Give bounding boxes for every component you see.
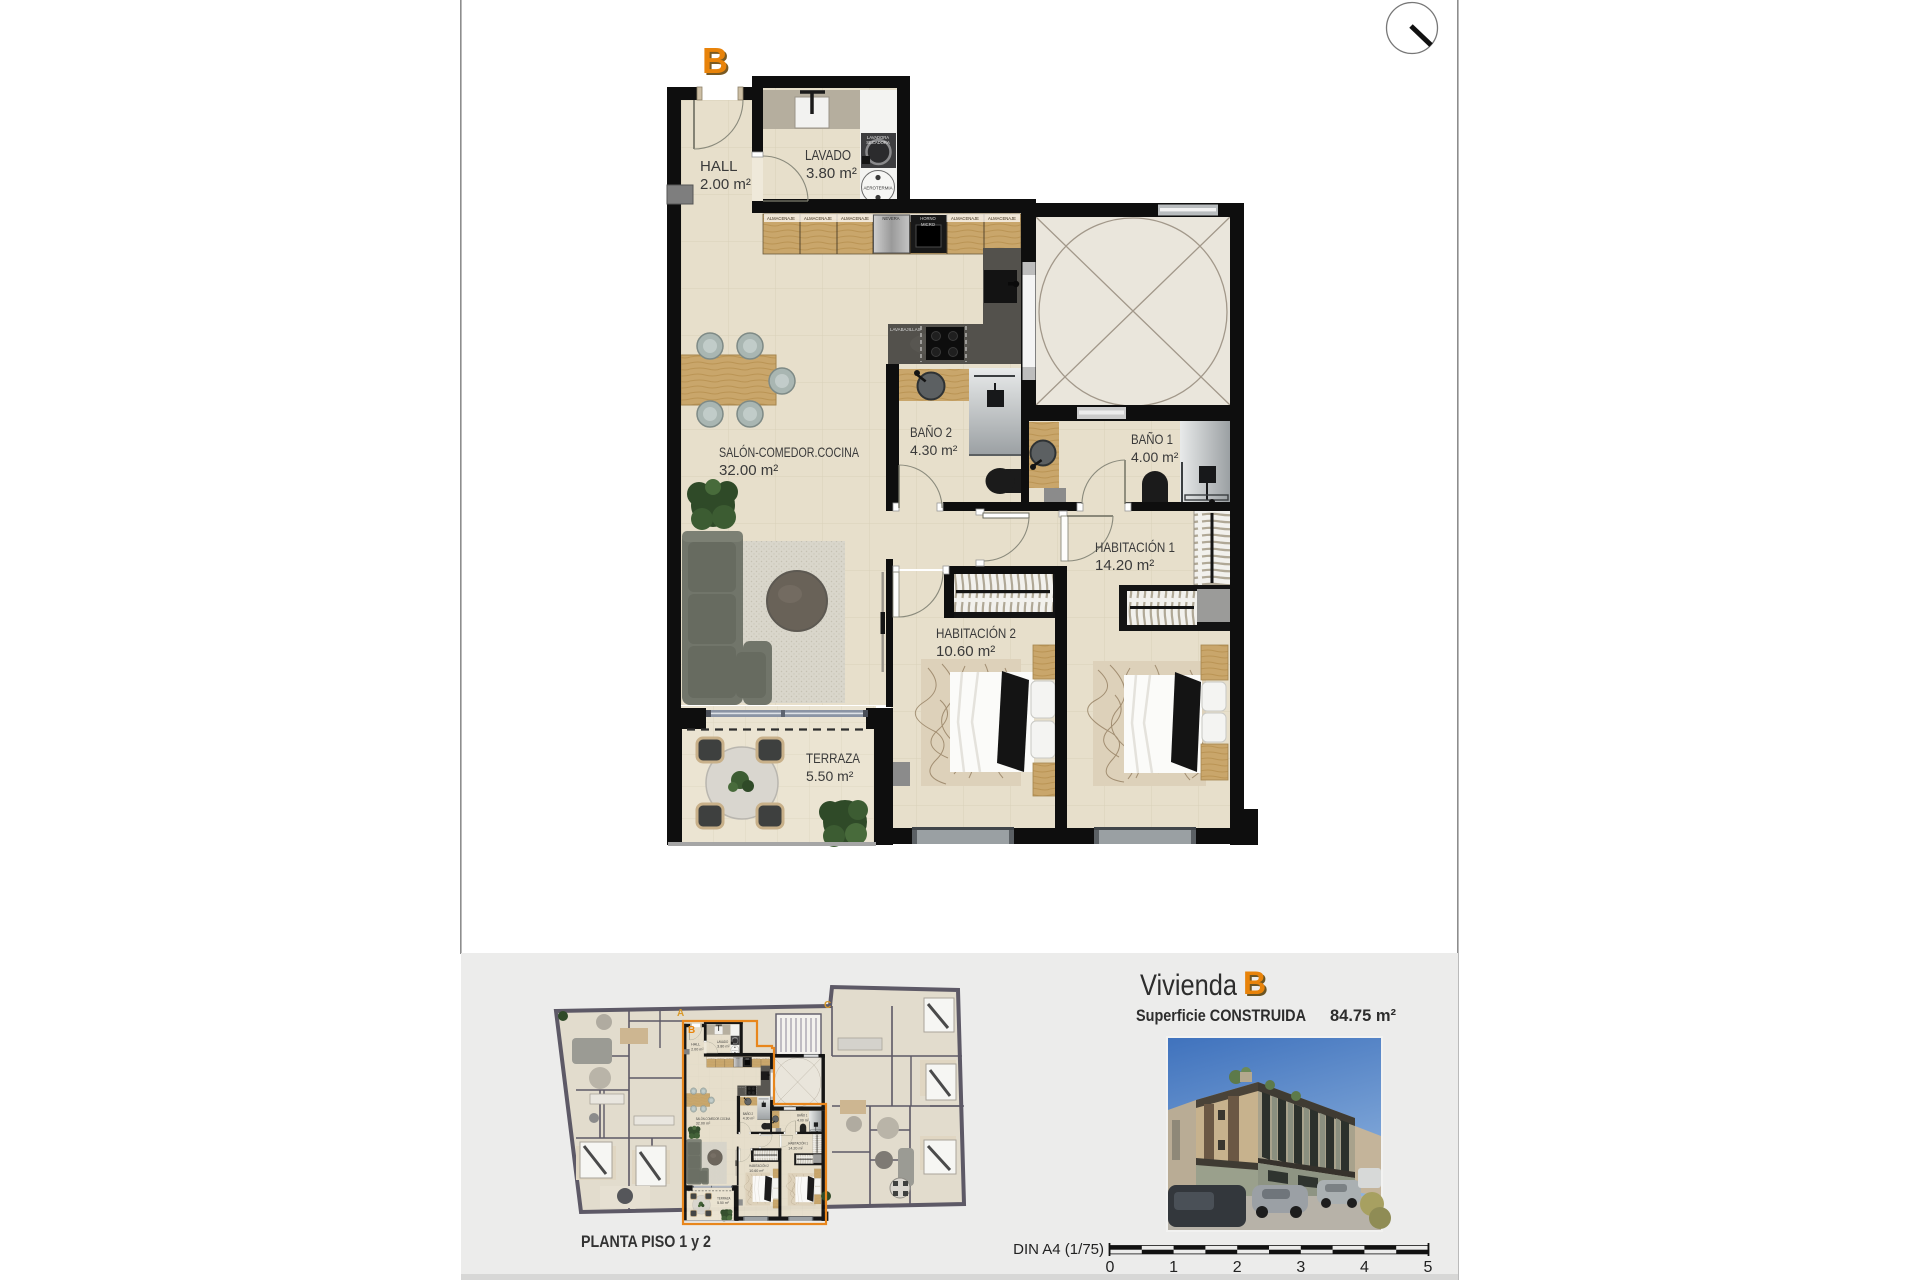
svg-text:84.75 m²: 84.75 m²: [1330, 1007, 1397, 1025]
svg-text:LAVADO: LAVADO: [805, 147, 851, 164]
svg-text:NEVERA: NEVERA: [882, 216, 899, 221]
svg-text:SALÓN-COMEDOR.COCINA: SALÓN-COMEDOR.COCINA: [719, 444, 860, 460]
svg-text:0: 0: [1106, 1259, 1115, 1276]
svg-text:TERRAZA: TERRAZA: [806, 750, 861, 766]
svg-text:AEROTERMIA: AEROTERMIA: [863, 186, 892, 191]
svg-text:A: A: [677, 1008, 684, 1019]
svg-text:Superficie CONSTRUIDA: Superficie CONSTRUIDA: [1136, 1007, 1306, 1025]
svg-text:HORNO: HORNO: [920, 216, 936, 221]
svg-text:14.20 m²: 14.20 m²: [1095, 557, 1154, 574]
svg-text:10.60 m²: 10.60 m²: [936, 643, 995, 660]
svg-text:MICRO: MICRO: [921, 222, 936, 227]
svg-text:B: B: [702, 40, 728, 81]
svg-text:DIN A4 (1/75): DIN A4 (1/75): [1013, 1241, 1104, 1258]
svg-text:PLANTA PISO 1 y 2: PLANTA PISO 1 y 2: [581, 1232, 711, 1251]
svg-text:ALMACENAJE: ALMACENAJE: [841, 216, 869, 221]
svg-text:ALMACENAJE: ALMACENAJE: [804, 216, 832, 221]
svg-text:4: 4: [1360, 1259, 1369, 1276]
svg-text:ALMACENAJE: ALMACENAJE: [767, 216, 795, 221]
svg-text:3.80 m²: 3.80 m²: [806, 165, 857, 182]
svg-text:3: 3: [1296, 1259, 1305, 1276]
svg-text:ALMACENAJE: ALMACENAJE: [988, 216, 1016, 221]
svg-text:1: 1: [1169, 1259, 1178, 1276]
svg-text:BAÑO 1: BAÑO 1: [1131, 431, 1173, 447]
svg-text:SECADORA: SECADORA: [866, 140, 890, 145]
svg-text:2.00 m²: 2.00 m²: [700, 176, 751, 193]
svg-text:HALL: HALL: [700, 158, 738, 175]
svg-text:4.30 m²: 4.30 m²: [910, 442, 958, 458]
svg-text:5.50 m²: 5.50 m²: [806, 768, 854, 784]
svg-text:ALMACENAJE: ALMACENAJE: [951, 216, 979, 221]
svg-text:5: 5: [1424, 1259, 1433, 1276]
svg-text:B: B: [1243, 965, 1266, 1001]
svg-text:LAVABAJILLAS: LAVABAJILLAS: [890, 327, 921, 332]
svg-text:32.00 m²: 32.00 m²: [719, 462, 778, 479]
svg-text:2: 2: [1233, 1259, 1242, 1276]
svg-text:HABITACIÓN 1: HABITACIÓN 1: [1095, 539, 1175, 555]
svg-text:HABITACIÓN 2: HABITACIÓN 2: [936, 625, 1016, 641]
svg-text:BAÑO 2: BAÑO 2: [910, 424, 952, 440]
svg-text:Vivienda: Vivienda: [1140, 969, 1237, 1002]
svg-text:4.00 m²: 4.00 m²: [1131, 449, 1179, 465]
svg-text:B: B: [688, 1025, 695, 1036]
svg-text:C: C: [824, 1000, 831, 1011]
